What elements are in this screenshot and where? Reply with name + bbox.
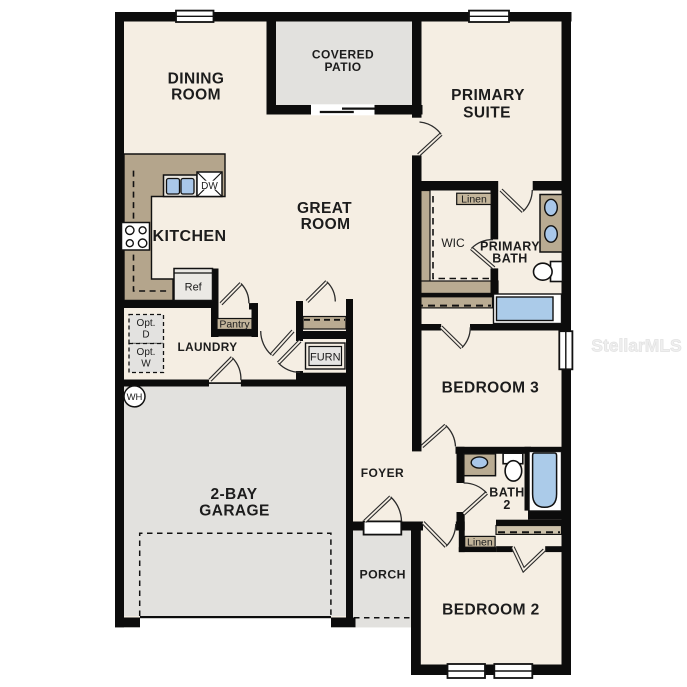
svg-text:BEDROOM 2: BEDROOM 2: [442, 602, 539, 619]
svg-text:Linen: Linen: [467, 536, 493, 548]
svg-text:Opt.: Opt.: [137, 347, 156, 358]
svg-text:Ref: Ref: [185, 282, 203, 294]
svg-text:PRIMARY: PRIMARY: [451, 87, 525, 104]
svg-text:Pantry: Pantry: [219, 319, 250, 331]
svg-text:KITCHEN: KITCHEN: [153, 228, 227, 245]
svg-text:2: 2: [503, 498, 510, 512]
svg-text:BEDROOM 3: BEDROOM 3: [442, 380, 539, 397]
svg-text:GREAT: GREAT: [297, 200, 352, 217]
svg-text:StellarMLS: StellarMLS: [591, 336, 681, 356]
svg-text:2-BAY: 2-BAY: [210, 486, 257, 503]
svg-text:LAUNDRY: LAUNDRY: [177, 340, 237, 354]
svg-text:ROOM: ROOM: [171, 87, 221, 104]
svg-text:PATIO: PATIO: [325, 60, 362, 74]
svg-text:DW: DW: [201, 181, 218, 192]
svg-text:BATH: BATH: [492, 252, 527, 266]
svg-text:PORCH: PORCH: [359, 568, 405, 582]
svg-text:DINING: DINING: [168, 71, 225, 88]
svg-text:WH: WH: [127, 392, 143, 403]
svg-text:FOYER: FOYER: [361, 466, 404, 480]
svg-text:GARAGE: GARAGE: [199, 503, 269, 520]
svg-text:WIC: WIC: [441, 236, 465, 250]
svg-text:W: W: [141, 359, 151, 370]
svg-text:Linen: Linen: [461, 193, 487, 205]
svg-text:ROOM: ROOM: [301, 216, 351, 233]
svg-text:SUITE: SUITE: [463, 104, 511, 121]
svg-text:FURN: FURN: [310, 352, 341, 364]
svg-text:Opt.: Opt.: [137, 318, 156, 329]
svg-text:D: D: [142, 330, 149, 341]
